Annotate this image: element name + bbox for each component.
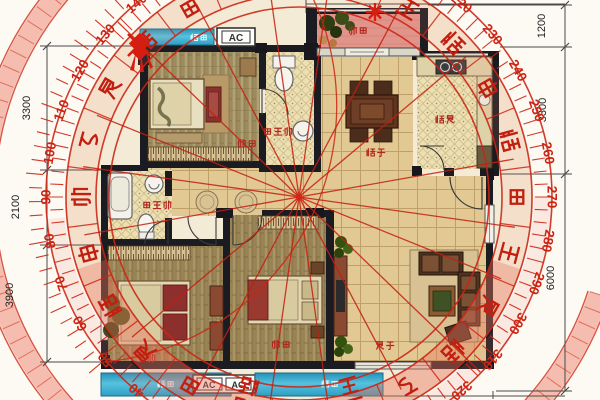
svg-text:270: 270: [544, 186, 559, 209]
svg-text:2100: 2100: [10, 195, 22, 219]
svg-text:90: 90: [39, 189, 54, 204]
svg-text:3300: 3300: [21, 96, 33, 120]
svg-text:3900: 3900: [4, 283, 16, 307]
svg-text:1200: 1200: [536, 14, 548, 38]
svg-text:80: 80: [41, 232, 58, 249]
svg-text:AC: AC: [229, 33, 243, 44]
